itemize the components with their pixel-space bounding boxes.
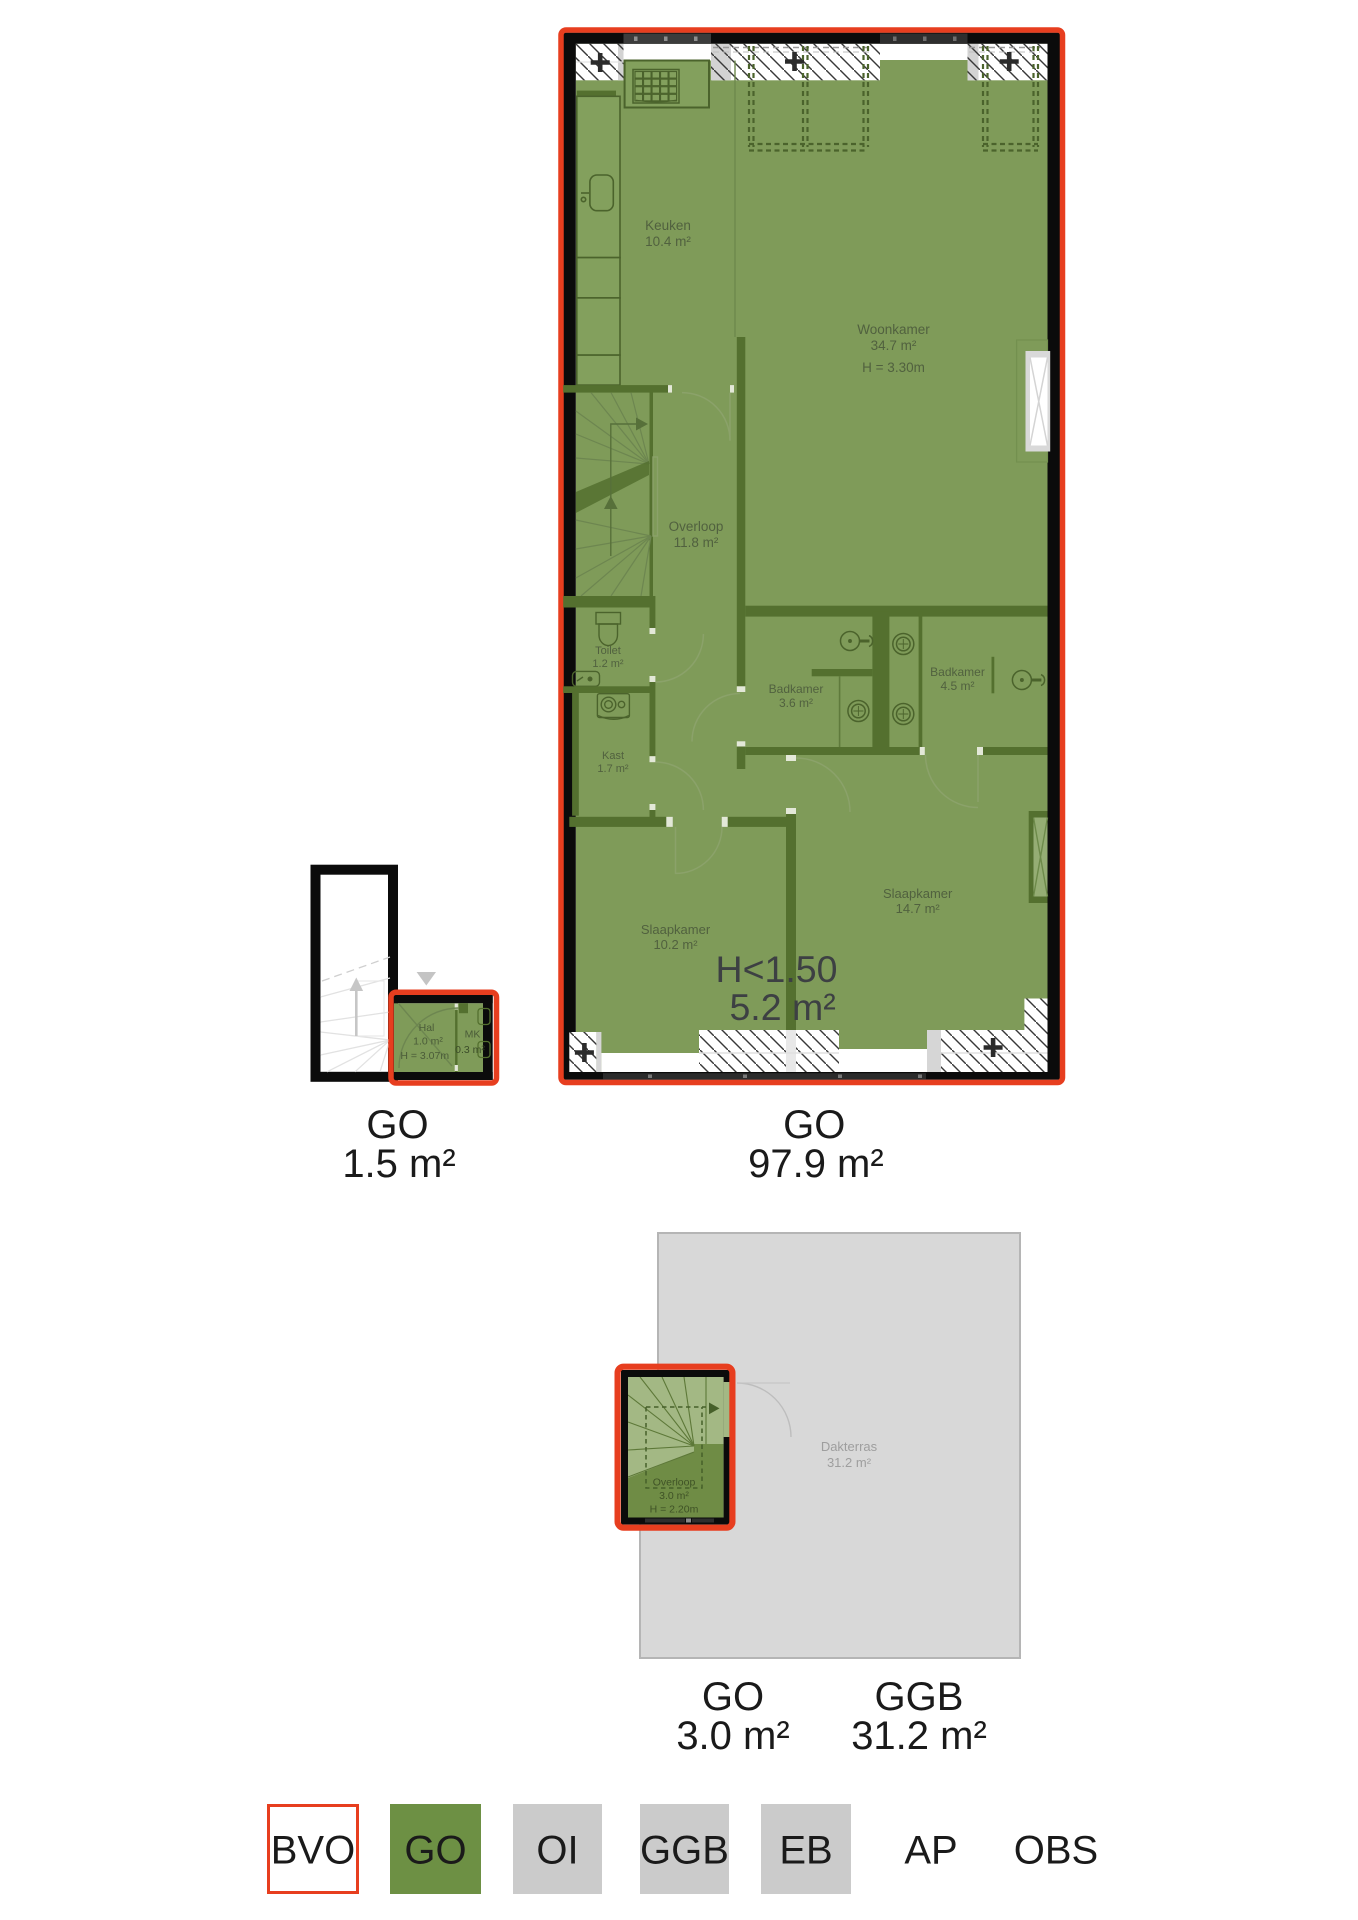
svg-text:0.3 m²: 0.3 m² xyxy=(455,1044,485,1056)
svg-text:Dakterras: Dakterras xyxy=(821,1439,878,1454)
svg-text:Badkamer: Badkamer xyxy=(930,665,985,679)
svg-text:Overloop: Overloop xyxy=(653,1477,696,1489)
svg-text:GO: GO xyxy=(404,1829,466,1873)
svg-text:Slaapkamer: Slaapkamer xyxy=(883,886,953,901)
svg-text:Badkamer: Badkamer xyxy=(769,682,824,696)
svg-text:1.2 m²: 1.2 m² xyxy=(592,658,624,670)
svg-text:Hal: Hal xyxy=(419,1022,435,1034)
svg-text:1.7 m²: 1.7 m² xyxy=(597,763,629,775)
svg-text:3.0 m²: 3.0 m² xyxy=(659,1490,689,1502)
svg-text:1.5 m²: 1.5 m² xyxy=(342,1142,455,1186)
svg-text:97.9 m²: 97.9 m² xyxy=(748,1142,884,1186)
svg-text:H = 2.20m: H = 2.20m xyxy=(650,1504,699,1516)
svg-text:4.5 m²: 4.5 m² xyxy=(940,679,974,693)
svg-text:GO: GO xyxy=(366,1103,428,1147)
svg-text:Overloop: Overloop xyxy=(669,519,724,534)
svg-text:1.0 m²: 1.0 m² xyxy=(413,1036,443,1048)
svg-text:MK: MK xyxy=(465,1029,481,1041)
svg-text:AP: AP xyxy=(904,1829,957,1873)
svg-text:Keuken: Keuken xyxy=(645,218,691,233)
svg-text:GGB: GGB xyxy=(875,1675,964,1719)
svg-text:OI: OI xyxy=(536,1829,578,1873)
svg-text:GGB: GGB xyxy=(640,1829,729,1873)
svg-text:3.6 m²: 3.6 m² xyxy=(779,696,813,710)
svg-text:10.4 m²: 10.4 m² xyxy=(645,234,691,249)
svg-text:Toilet: Toilet xyxy=(595,645,621,657)
svg-text:34.7 m²: 34.7 m² xyxy=(871,338,917,353)
svg-text:11.8 m²: 11.8 m² xyxy=(674,535,719,550)
svg-text:GO: GO xyxy=(702,1675,764,1719)
svg-text:GO: GO xyxy=(783,1103,845,1147)
svg-text:31.2 m²: 31.2 m² xyxy=(827,1455,872,1470)
svg-text:EB: EB xyxy=(779,1829,832,1873)
svg-text:H = 3.07m: H = 3.07m xyxy=(400,1050,449,1062)
svg-text:Slaapkamer: Slaapkamer xyxy=(641,922,711,937)
svg-text:14.7 m²: 14.7 m² xyxy=(896,901,941,916)
svg-text:H<1.50: H<1.50 xyxy=(716,948,838,990)
svg-text:31.2 m²: 31.2 m² xyxy=(851,1714,987,1758)
svg-text:Kast: Kast xyxy=(602,750,624,762)
svg-text:10.2 m²: 10.2 m² xyxy=(653,937,698,952)
svg-text:3.0 m²: 3.0 m² xyxy=(676,1714,789,1758)
svg-text:5.2 m²: 5.2 m² xyxy=(729,986,835,1028)
svg-text:OBS: OBS xyxy=(1014,1829,1098,1873)
svg-text:Woonkamer: Woonkamer xyxy=(857,322,930,337)
svg-text:BVO: BVO xyxy=(271,1829,355,1873)
svg-text:H = 3.30m: H = 3.30m xyxy=(862,360,925,375)
